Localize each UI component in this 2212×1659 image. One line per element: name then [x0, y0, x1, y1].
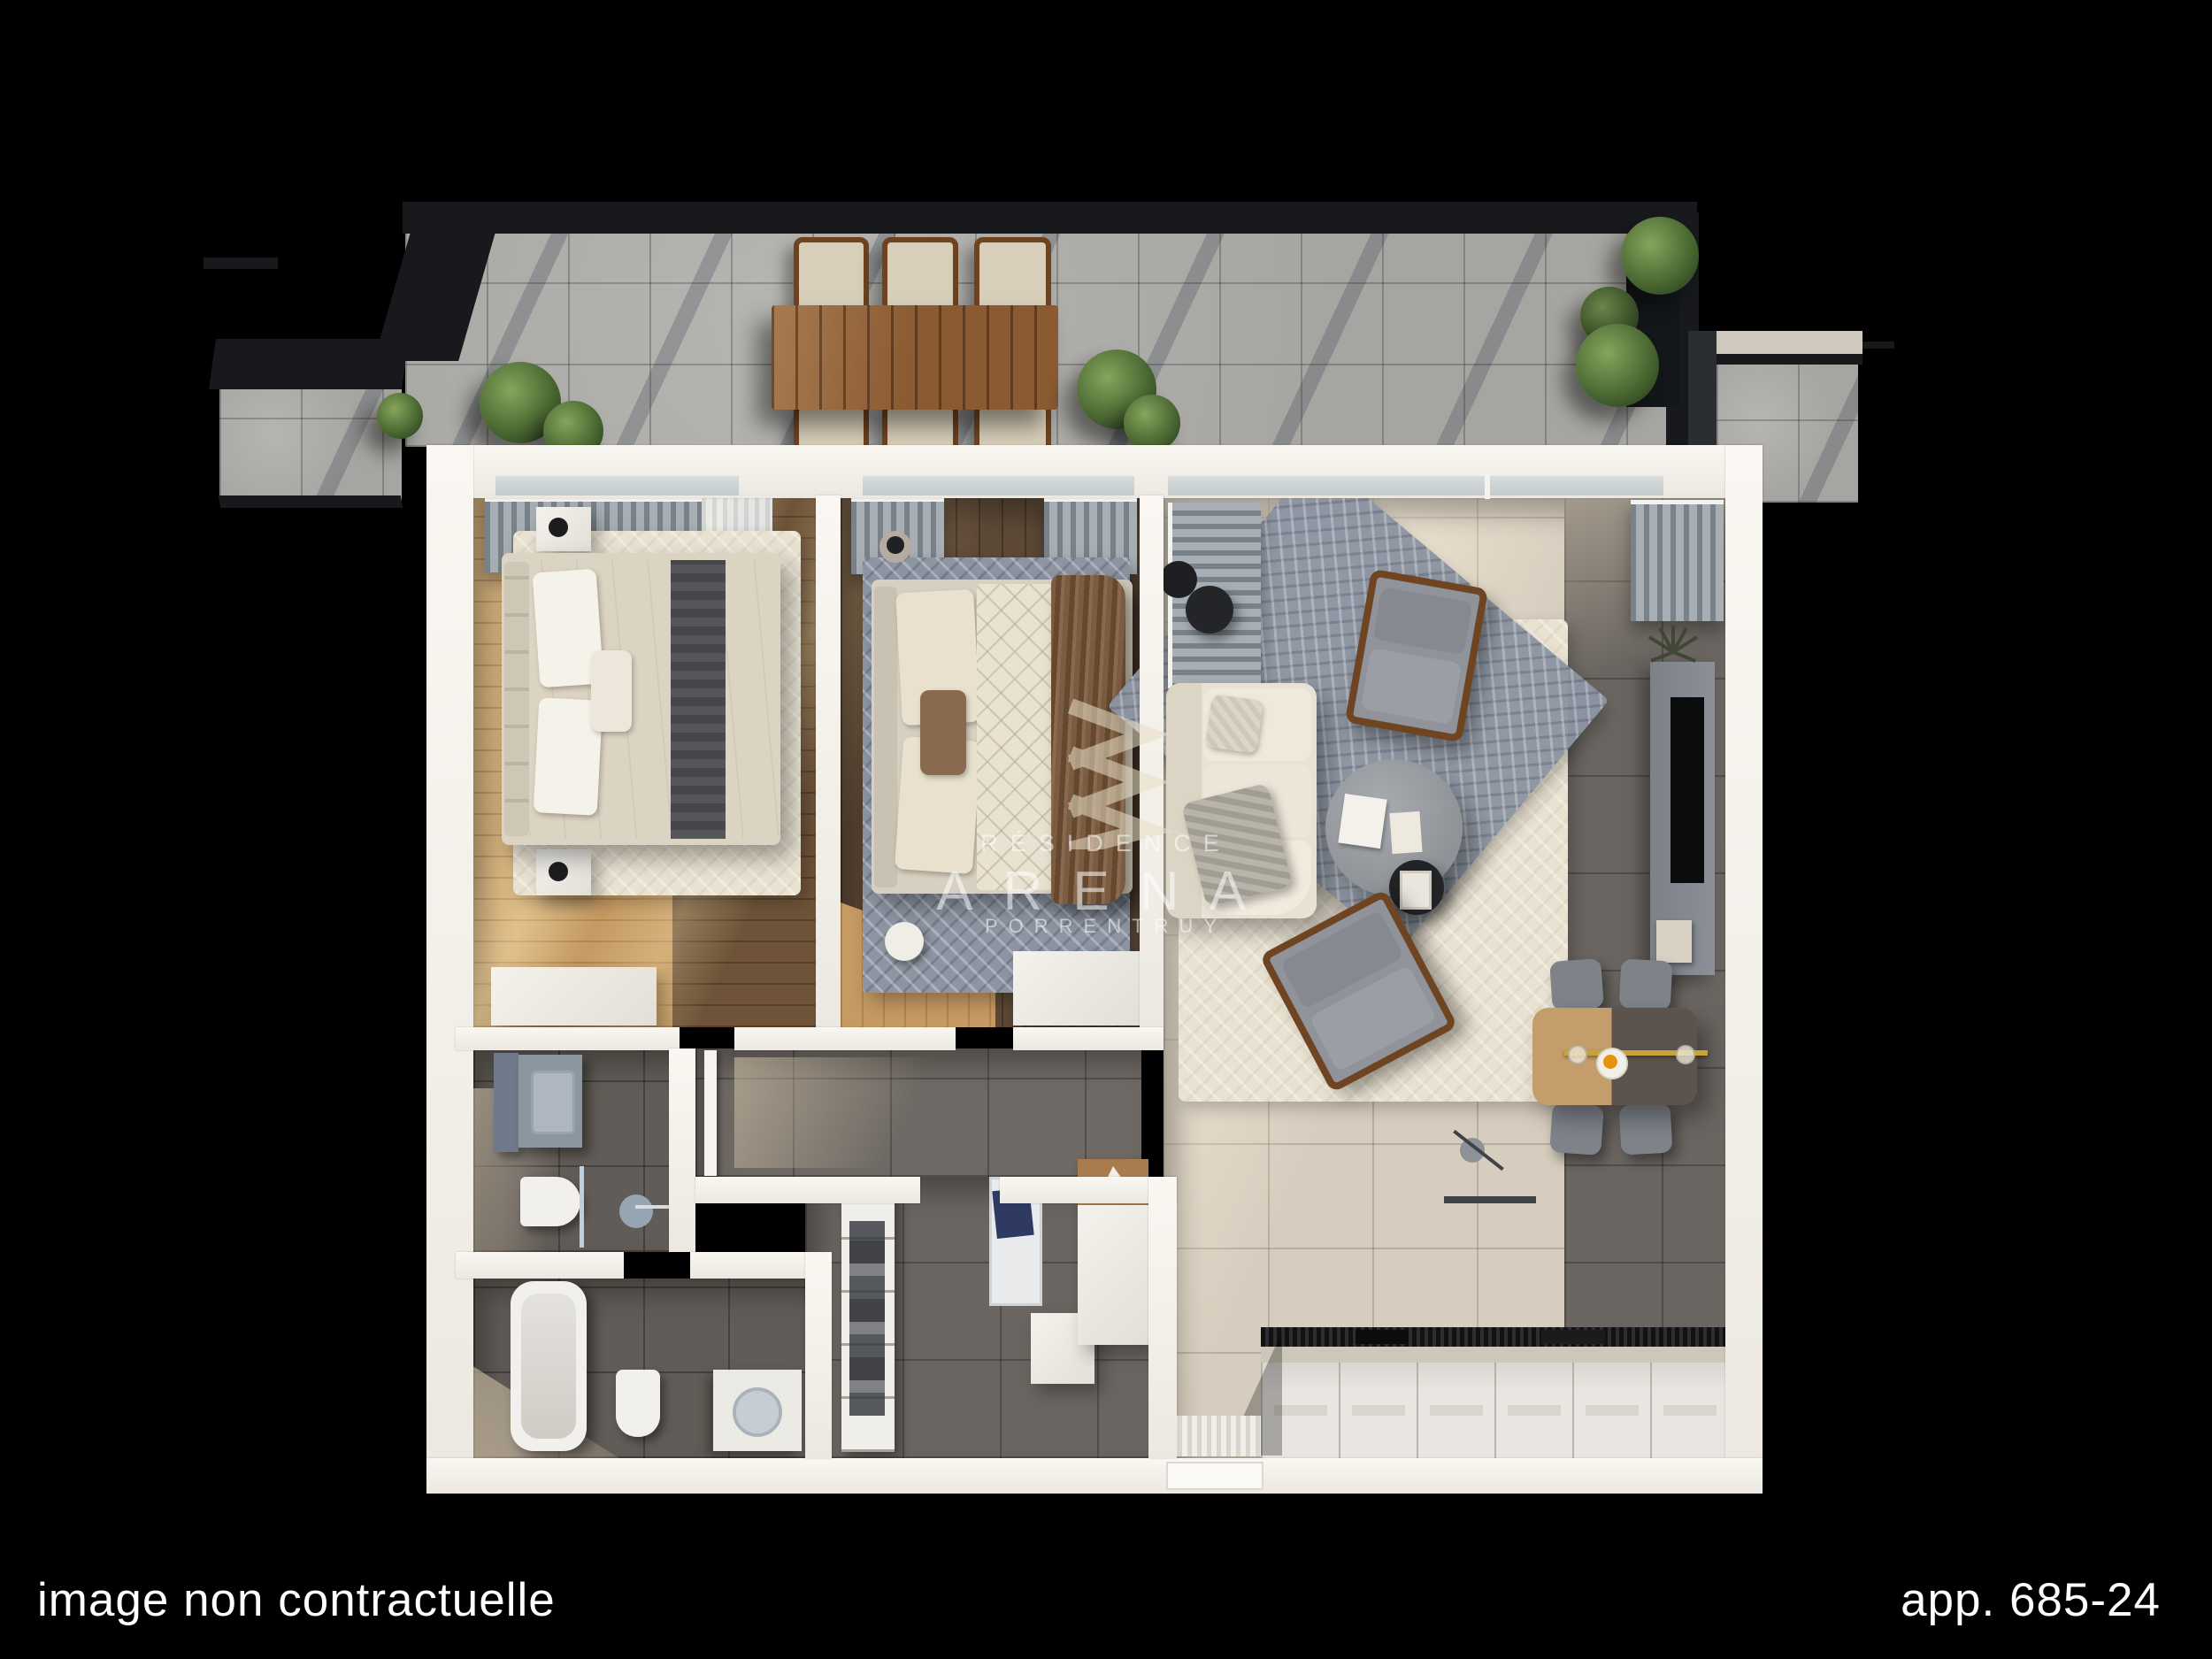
caption-apartment-number: app. 685-24: [1901, 1573, 2161, 1627]
toilet: [520, 1177, 580, 1226]
shower-drain-plate: [619, 1194, 653, 1228]
living-curtain-right: [1631, 500, 1724, 621]
bush: [377, 393, 423, 439]
bedroom1-lamp: [549, 518, 568, 537]
toilet: [616, 1370, 660, 1437]
sofa-pillow: [1205, 694, 1263, 753]
wall-left: [426, 445, 473, 1494]
bedroom2-breakfast-tray: [885, 922, 924, 961]
tv-screen: [1671, 697, 1704, 883]
bedroom1-headboard: [504, 562, 529, 836]
bathroom-washbasin: [733, 1387, 782, 1437]
wall-bathroom-north: [690, 1252, 805, 1279]
pendant-bulb: [1676, 1045, 1695, 1064]
cooktop: [1356, 1330, 1409, 1344]
terrace-chair: [794, 237, 869, 316]
bush: [1621, 217, 1699, 295]
kitchen-countertop: [1261, 1327, 1725, 1347]
neighbour-rail: [1863, 342, 1894, 349]
side-table-frame: [1400, 871, 1432, 910]
left-balcony-edge: [219, 495, 403, 508]
palm-plant: [1642, 621, 1704, 683]
watermark-city: PORRENTRUY: [929, 915, 1283, 938]
wall-shower-east: [669, 1048, 695, 1252]
wall-bathroom-north: [456, 1252, 624, 1279]
bedroom1-lamp: [549, 862, 568, 881]
bathtub-basin: [521, 1294, 576, 1439]
bedroom2-headboard: [874, 587, 897, 887]
bedroom1-window: [495, 476, 739, 495]
bedroom1-cushion: [591, 650, 632, 732]
wall-bedrooms-south: [456, 1027, 680, 1050]
wall-bottom: [426, 1458, 1763, 1494]
entry-cabinet: [1078, 1205, 1148, 1345]
wardrobe-clothes: [849, 1221, 885, 1416]
dining-chair: [1549, 958, 1604, 1011]
bedroom2-accent-pillow: [920, 690, 966, 775]
watermark-logo-chevrons: [1058, 699, 1173, 849]
wall-bd1-bd2: [816, 495, 841, 1048]
caption-disclaimer: image non contractuelle: [37, 1573, 556, 1627]
bedroom2-lamp: [887, 536, 904, 554]
left-balcony-tiles: [219, 389, 402, 501]
hallway-sun-patch: [734, 1057, 947, 1168]
floor-lamp-base: [1444, 1196, 1536, 1203]
bedroom2-closet: [1013, 951, 1140, 1025]
armchair-back-cushion: [1373, 587, 1473, 656]
fruit-oranges: [1603, 1055, 1617, 1069]
bedroom2-window: [863, 476, 1134, 495]
neighbour-awning: [1717, 331, 1863, 354]
window-mullion: [1485, 472, 1490, 499]
floor-plan-render: RÉSIDENCE ARENA PORRENTRUY image non con…: [0, 0, 2212, 1659]
living-window: [1168, 476, 1663, 495]
pergola-top-bar: [403, 202, 1697, 234]
wall-dressing-east: [1148, 1177, 1177, 1458]
armchair-seat-cushion: [1361, 648, 1462, 725]
bush: [1124, 395, 1180, 451]
wall-bath-dressing: [805, 1252, 832, 1458]
shower-vanity-cabinet: [494, 1053, 518, 1152]
door-leaf-bedroom1: [704, 1050, 717, 1176]
terrace-dining-table: [772, 305, 1058, 410]
bush: [1576, 324, 1659, 407]
entrance-door: [1166, 1462, 1263, 1490]
left-balcony-rail: [204, 257, 278, 269]
coffee-table-book: [1389, 811, 1422, 854]
neighbour-awning-edge: [1717, 354, 1863, 365]
kitchen-counter-surface: [1261, 1347, 1725, 1363]
dining-chair: [1619, 959, 1673, 1011]
tv-shelf-items: [1656, 920, 1692, 963]
entrance-doormat: [1168, 1416, 1261, 1456]
watermark-residence: RÉSIDENCE: [929, 830, 1283, 857]
wall-right: [1725, 445, 1763, 1494]
shower-washbasin: [531, 1071, 575, 1134]
wall-hall-south: [695, 1177, 920, 1203]
shower-glass-panel: [580, 1166, 584, 1248]
bedroom1-dresser: [491, 967, 657, 1025]
coffee-table-book: [1338, 794, 1386, 849]
wall-bedrooms-south: [734, 1027, 956, 1050]
kitchen-cabinet-handles: [1274, 1405, 1717, 1416]
dining-chair: [1619, 1103, 1673, 1156]
pendant-bulb: [1568, 1045, 1587, 1064]
terrace-chair: [974, 237, 1051, 316]
dining-chair: [1549, 1102, 1604, 1156]
terrace-chair: [882, 237, 958, 316]
wall-bedrooms-south: [1013, 1027, 1164, 1050]
kitchen-sink: [1541, 1330, 1605, 1344]
watermark-brand: ARENA: [885, 860, 1327, 923]
living-side-table-black: [1186, 586, 1233, 634]
bedroom1-throw-blanket: [671, 560, 726, 839]
